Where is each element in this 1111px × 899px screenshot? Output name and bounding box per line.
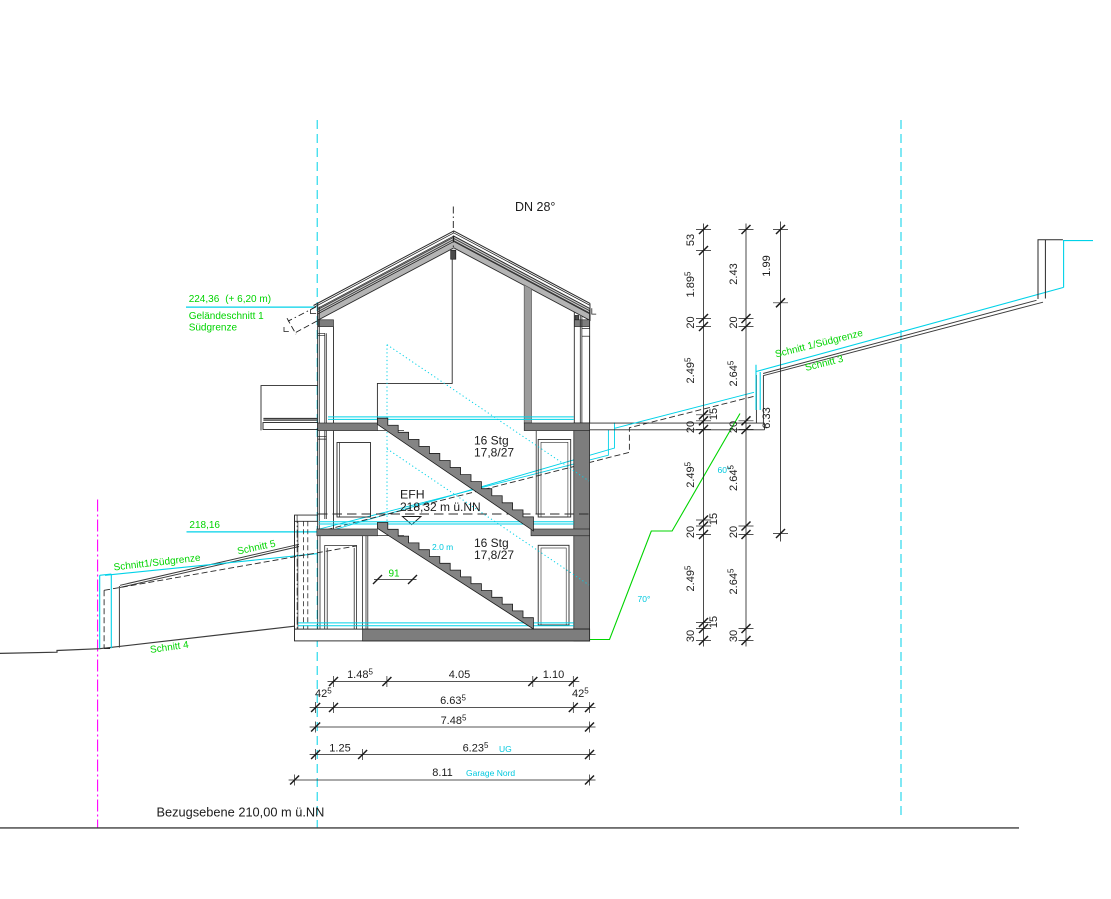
svg-text:2.645: 2.645: [727, 465, 741, 491]
svg-text:Schnitt 5: Schnitt 5: [236, 538, 277, 557]
svg-text:6.235: 6.235: [463, 741, 489, 755]
svg-text:8.11: 8.11: [432, 767, 453, 779]
svg-text:Garage Nord: Garage Nord: [466, 768, 515, 778]
svg-text:15: 15: [708, 408, 720, 420]
svg-text:Südgrenze: Südgrenze: [189, 323, 238, 334]
svg-text:30: 30: [728, 630, 740, 642]
svg-text:Schnitt 1/Südgrenze: Schnitt 1/Südgrenze: [774, 328, 864, 361]
svg-text:15: 15: [708, 616, 720, 628]
svg-text:425: 425: [572, 687, 589, 701]
svg-text:2.43: 2.43: [728, 263, 740, 284]
svg-text:(+ 6,20 m): (+ 6,20 m): [225, 294, 271, 305]
svg-text:1.895: 1.895: [684, 271, 698, 297]
svg-text:Geländeschnitt 1: Geländeschnitt 1: [189, 311, 264, 322]
svg-text:1.10: 1.10: [543, 669, 564, 681]
svg-text:2.495: 2.495: [684, 565, 698, 591]
svg-text:91: 91: [389, 569, 401, 580]
svg-text:1.99: 1.99: [761, 255, 773, 276]
svg-text:Bezugsebene 210,00 m ü.NN: Bezugsebene 210,00 m ü.NN: [157, 805, 325, 820]
svg-text:218,16: 218,16: [189, 520, 220, 531]
svg-text:1.485: 1.485: [347, 668, 373, 682]
svg-text:17,8/27: 17,8/27: [474, 446, 514, 460]
svg-text:7.485: 7.485: [441, 714, 467, 728]
svg-text:2.0 m: 2.0 m: [432, 542, 453, 552]
svg-text:17,8/27: 17,8/27: [474, 548, 514, 562]
svg-text:4.05: 4.05: [449, 669, 470, 681]
svg-text:224,36: 224,36: [189, 294, 220, 305]
svg-text:20: 20: [685, 526, 697, 538]
svg-text:20: 20: [728, 421, 740, 433]
svg-text:20: 20: [728, 526, 740, 538]
svg-text:20: 20: [685, 421, 697, 433]
svg-text:218,32 m ü.NN: 218,32 m ü.NN: [400, 500, 481, 514]
svg-text:1.25: 1.25: [329, 743, 350, 755]
svg-text:6.33: 6.33: [761, 407, 773, 428]
svg-text:2.645: 2.645: [727, 360, 741, 386]
svg-text:DN 28°: DN 28°: [515, 200, 555, 214]
svg-text:UG: UG: [499, 744, 512, 754]
svg-text:2.495: 2.495: [684, 357, 698, 383]
svg-text:2.645: 2.645: [727, 568, 741, 594]
svg-text:70°: 70°: [638, 594, 651, 604]
svg-text:425: 425: [315, 687, 332, 701]
svg-text:20: 20: [728, 316, 740, 328]
svg-text:30: 30: [685, 630, 697, 642]
svg-text:20: 20: [685, 316, 697, 328]
svg-text:53: 53: [685, 234, 697, 246]
svg-text:15: 15: [708, 513, 720, 525]
svg-text:2.495: 2.495: [684, 461, 698, 487]
svg-text:6.635: 6.635: [440, 694, 466, 708]
